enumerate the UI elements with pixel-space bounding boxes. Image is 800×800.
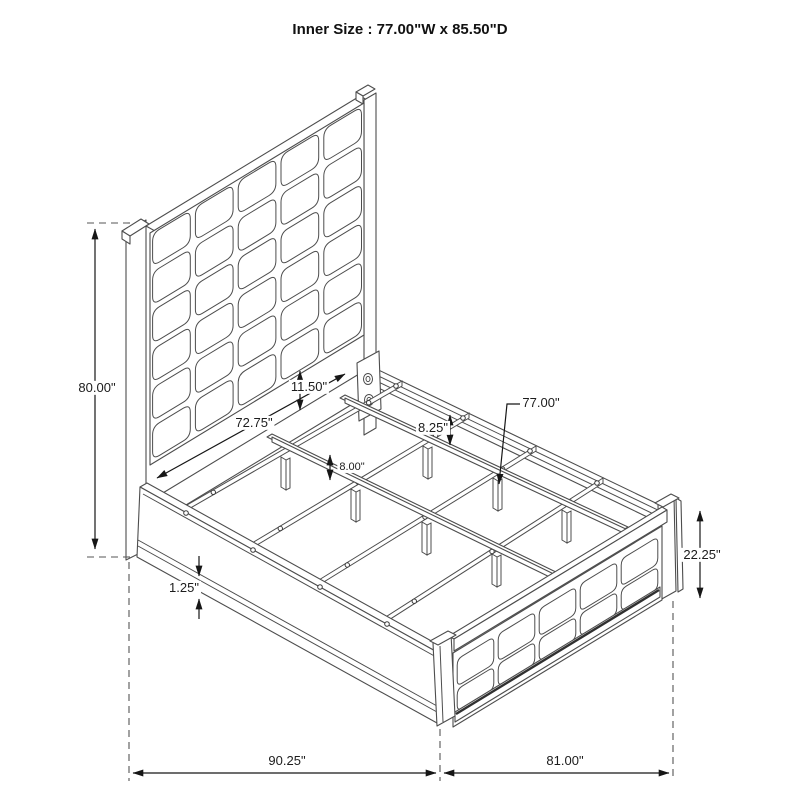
dim-rail-width-label: 72.75" bbox=[233, 416, 274, 430]
near-side-rail bbox=[137, 483, 444, 723]
dim-leg-height-label: 8.00" bbox=[337, 461, 366, 473]
dim-slat-width-label: 77.00" bbox=[520, 396, 561, 410]
bed-dimension-diagram: Inner Size : 77.00"W x 85.50"D 80.00" 72… bbox=[0, 0, 800, 800]
footboard-near-post bbox=[433, 633, 455, 726]
dim-panel-gap-label: 11.50" bbox=[289, 380, 329, 394]
dim-rail-drop-label: 8.25" bbox=[416, 421, 450, 435]
headboard bbox=[122, 85, 376, 560]
dim-footboard-height-label: 22.25" bbox=[681, 548, 722, 562]
dim-overall-width-label: 81.00" bbox=[544, 754, 585, 768]
dim-rail-lip-label: 1.25" bbox=[167, 581, 201, 595]
diagram-title: Inner Size : 77.00"W x 85.50"D bbox=[292, 21, 507, 38]
dim-headboard-height-label: 80.00" bbox=[76, 381, 117, 395]
dim-overall-depth-label: 90.25" bbox=[266, 754, 307, 768]
bed-line-drawing bbox=[0, 0, 800, 800]
